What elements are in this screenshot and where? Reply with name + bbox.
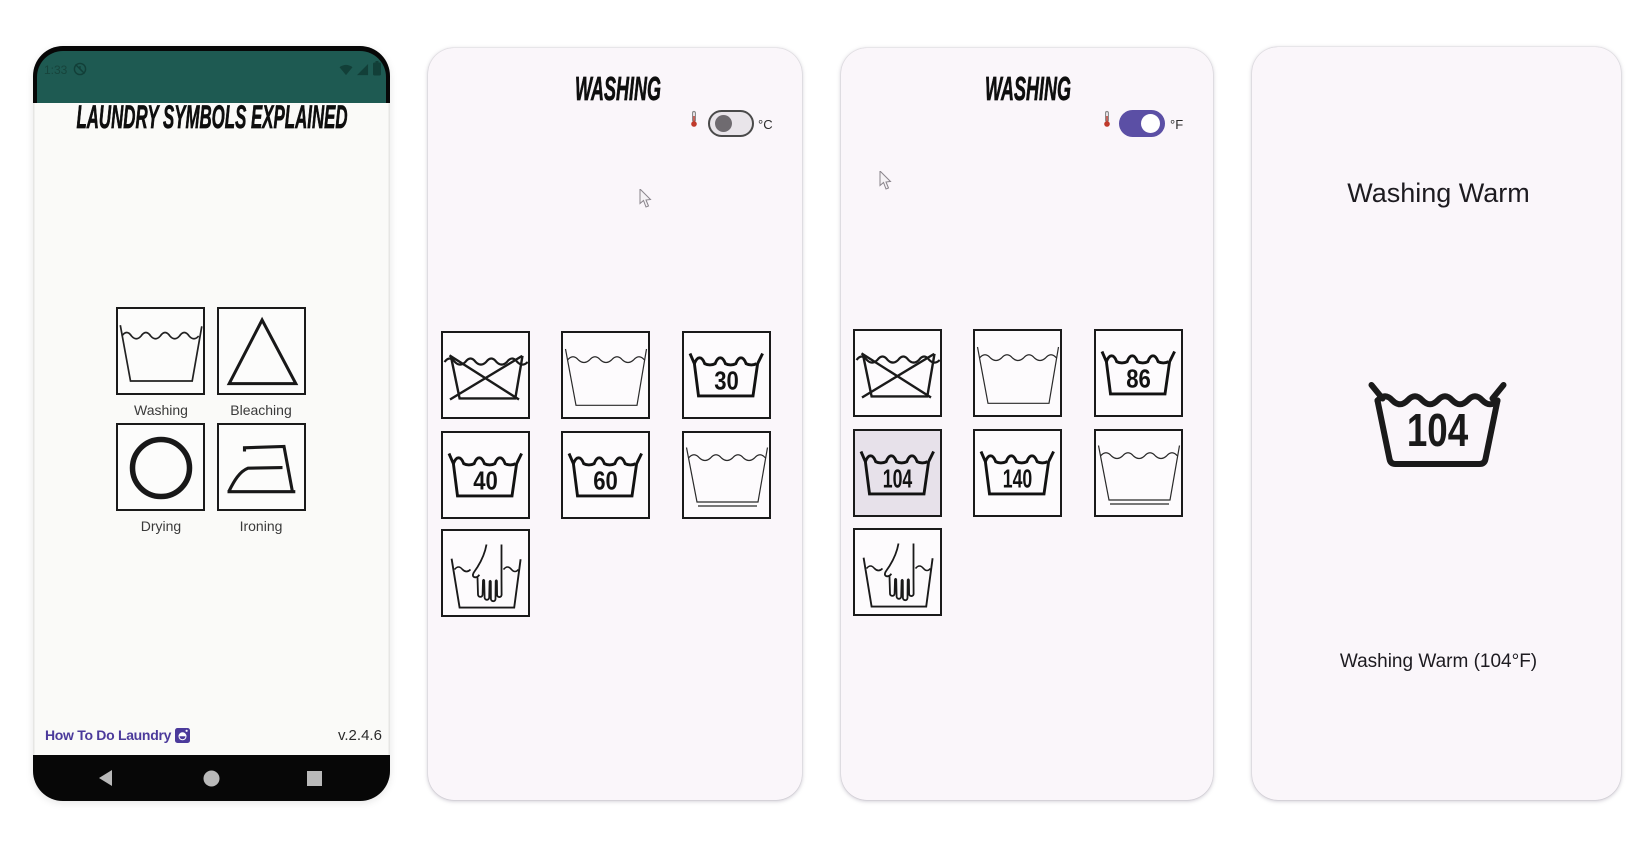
- svg-text:140: 140: [1003, 464, 1032, 493]
- svg-text:104: 104: [883, 464, 913, 493]
- svg-text:40: 40: [473, 466, 498, 495]
- svg-text:86: 86: [1126, 365, 1151, 394]
- svg-text:60: 60: [593, 466, 618, 495]
- svg-text:104: 104: [1407, 404, 1468, 456]
- svg-text:30: 30: [714, 367, 739, 396]
